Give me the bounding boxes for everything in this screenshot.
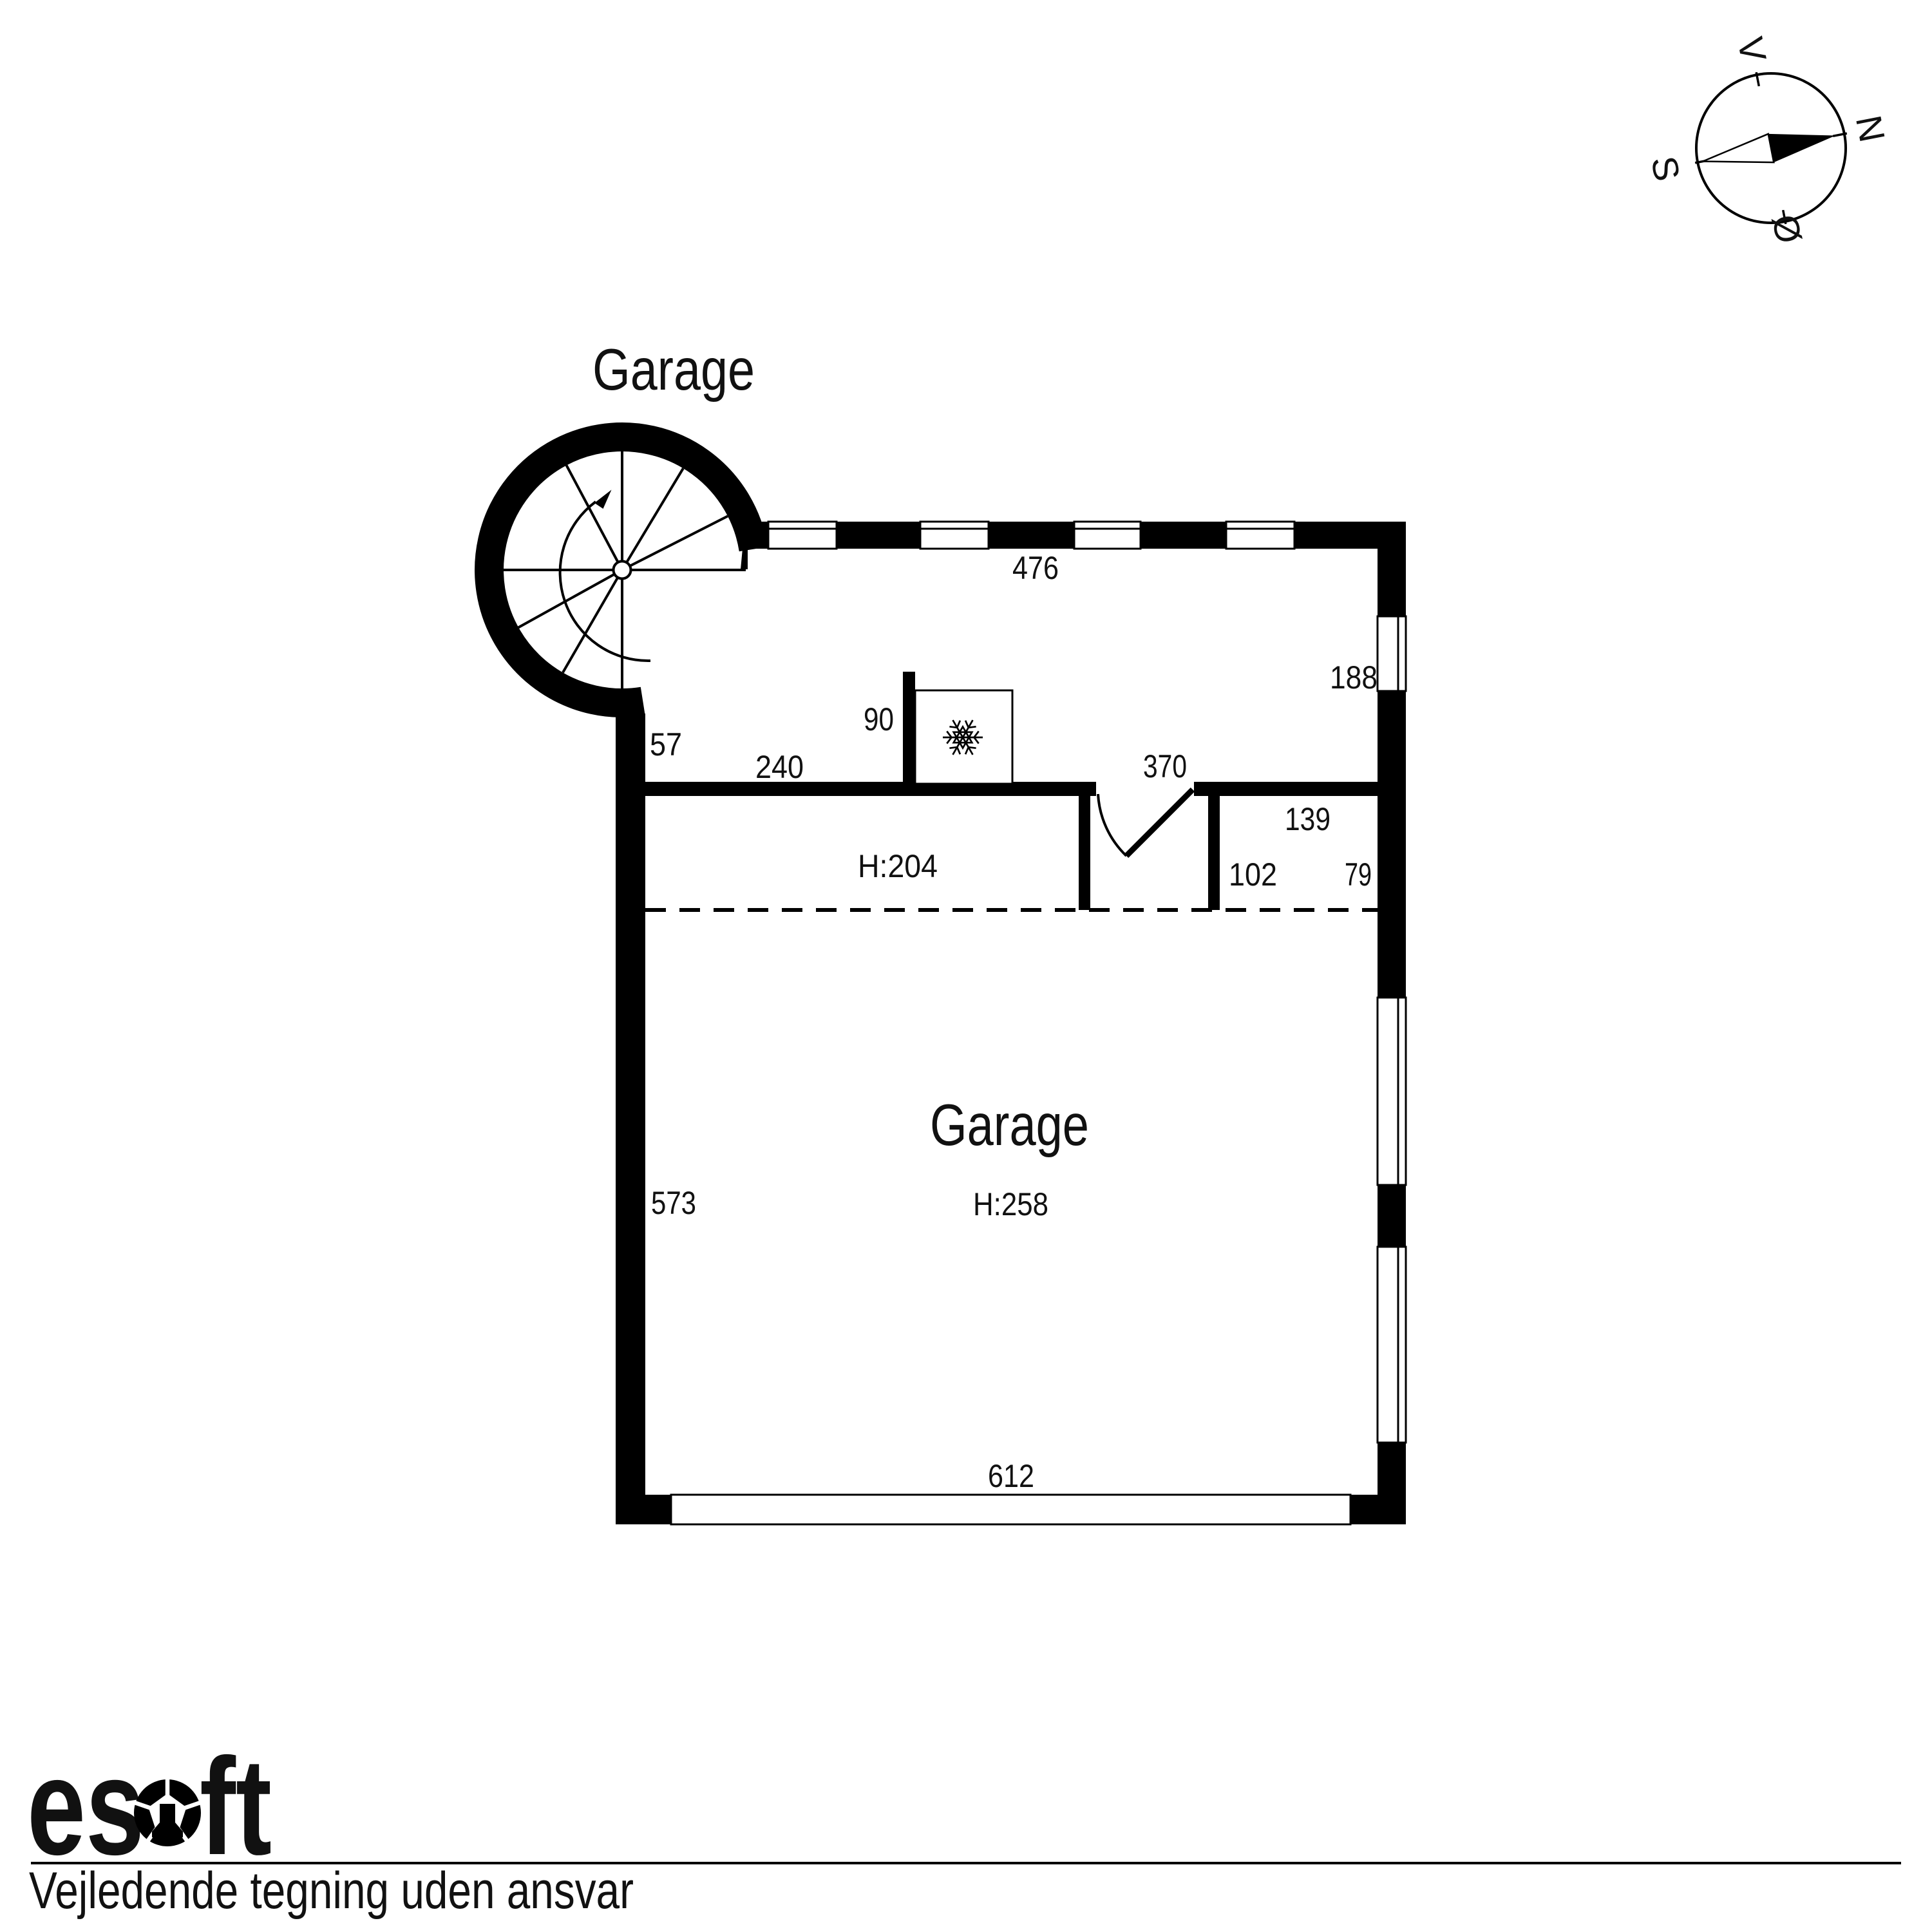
svg-text:H:204: H:204	[858, 848, 938, 884]
svg-text:90: 90	[864, 701, 894, 737]
svg-text:79: 79	[1345, 857, 1372, 893]
svg-text:612: 612	[988, 1458, 1034, 1494]
svg-text:Garage: Garage	[930, 1093, 1089, 1158]
svg-text:Garage: Garage	[592, 337, 755, 402]
svg-text:102: 102	[1229, 857, 1277, 893]
svg-text:240: 240	[755, 749, 804, 785]
svg-text:57: 57	[650, 726, 682, 762]
svg-text:476: 476	[1012, 550, 1059, 586]
svg-text:H:258: H:258	[973, 1186, 1048, 1222]
svg-text:573: 573	[651, 1185, 696, 1221]
svg-text:ft: ft	[200, 1730, 272, 1884]
svg-text:es: es	[27, 1730, 144, 1884]
svg-text:Vejledende tegning uden ansvar: Vejledende tegning uden ansvar	[29, 1862, 634, 1920]
svg-text:139: 139	[1285, 801, 1331, 837]
svg-text:370: 370	[1143, 748, 1187, 784]
svg-text:188: 188	[1330, 659, 1378, 696]
